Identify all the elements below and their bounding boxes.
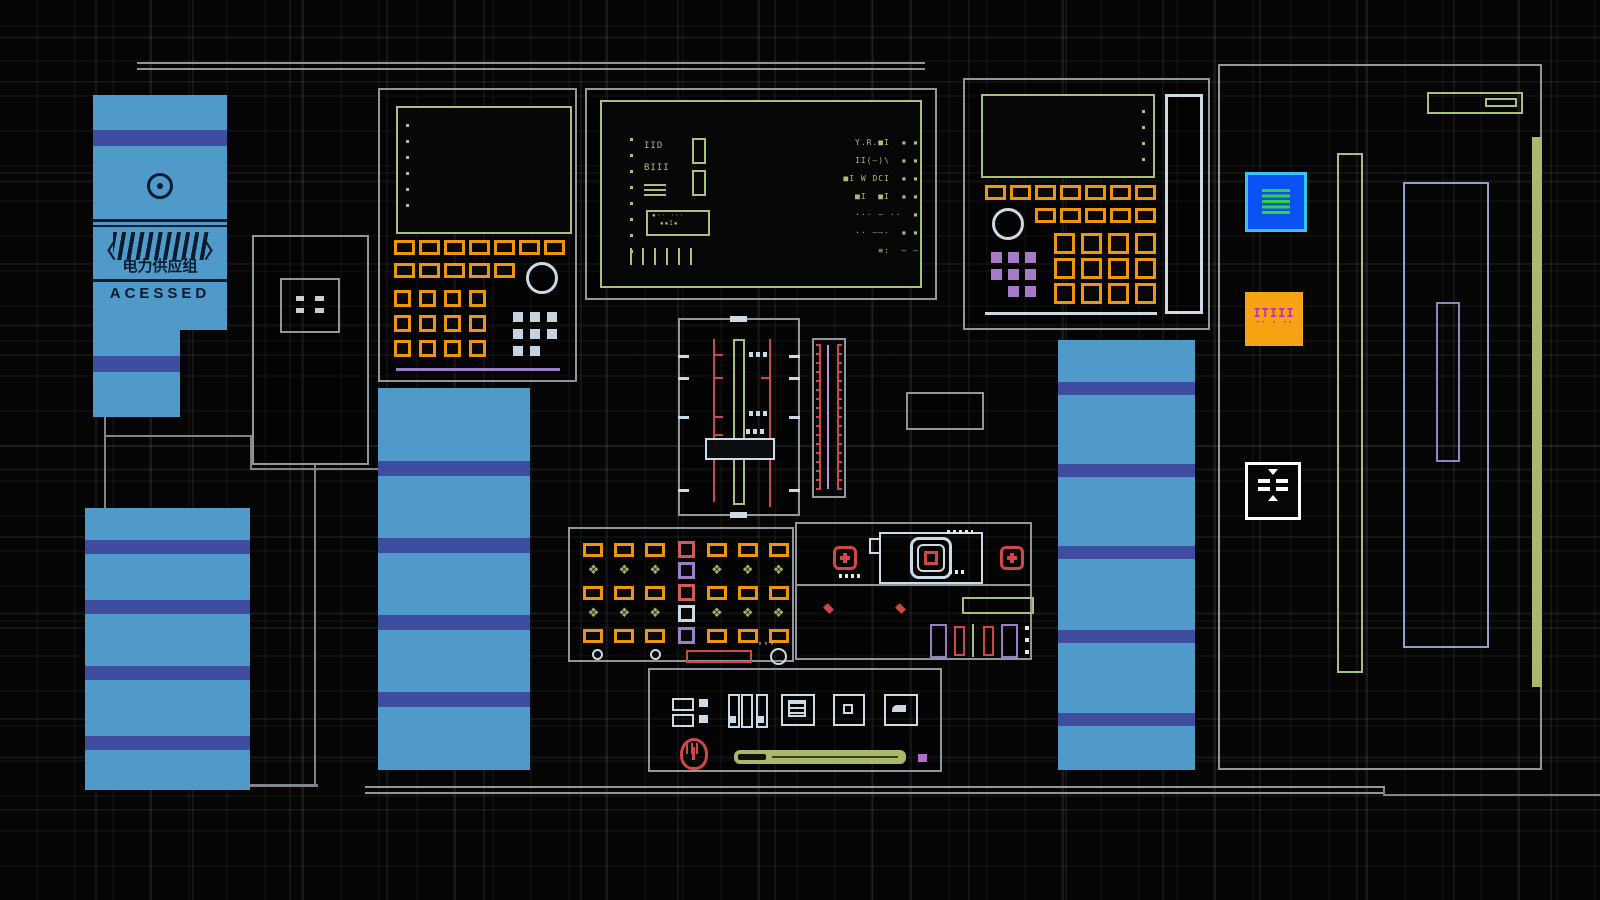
pad-key[interactable] bbox=[1135, 258, 1156, 279]
function-key[interactable] bbox=[419, 240, 440, 255]
matrix-key[interactable] bbox=[707, 629, 727, 643]
menu-icon bbox=[1262, 189, 1290, 215]
bracket-bar bbox=[1258, 479, 1288, 483]
gauge-center-line bbox=[827, 345, 829, 489]
screen-text: Y.R.■I ▪ ▪ bbox=[807, 134, 919, 152]
right-console-screen bbox=[981, 94, 1155, 178]
pad-key[interactable] bbox=[444, 315, 461, 332]
pad-key[interactable] bbox=[419, 340, 436, 357]
right-console bbox=[963, 78, 1210, 330]
fader-handle[interactable] bbox=[705, 438, 775, 460]
function-key-row bbox=[394, 263, 515, 278]
matrix-key[interactable] bbox=[583, 629, 603, 643]
matrix-key-white[interactable] bbox=[678, 605, 695, 622]
pad-key[interactable] bbox=[1135, 283, 1156, 304]
mini-key[interactable] bbox=[547, 312, 557, 322]
deco-dots bbox=[839, 574, 861, 578]
target-icon bbox=[147, 173, 173, 199]
screen-dot-column bbox=[406, 124, 409, 220]
mini-key[interactable] bbox=[1025, 286, 1036, 297]
screen-dot-column bbox=[630, 138, 633, 258]
power-trace-v bbox=[104, 415, 106, 508]
function-key[interactable] bbox=[1035, 185, 1056, 200]
charge-bar bbox=[734, 750, 906, 764]
function-key[interactable] bbox=[394, 263, 415, 278]
diamond-icon: ❖ bbox=[732, 560, 763, 581]
deco-dots bbox=[947, 530, 973, 534]
matrix-key[interactable] bbox=[614, 543, 634, 557]
screen-text: IID bbox=[644, 140, 663, 153]
pad-key[interactable] bbox=[469, 290, 486, 307]
mini-key[interactable] bbox=[530, 312, 540, 322]
layout-mode-button[interactable] bbox=[672, 696, 710, 728]
panel-tab bbox=[730, 512, 747, 518]
mini-key[interactable] bbox=[513, 312, 523, 322]
function-key[interactable] bbox=[1035, 208, 1056, 223]
bottom-trace-stub bbox=[1383, 788, 1385, 796]
function-key[interactable] bbox=[394, 240, 415, 255]
mini-keypad bbox=[513, 312, 557, 356]
screen-text: ·· ––· ▪ ▪ bbox=[807, 224, 919, 242]
bracket-bar bbox=[1258, 487, 1288, 491]
function-key[interactable] bbox=[1060, 208, 1081, 223]
mini-key[interactable] bbox=[991, 269, 1002, 280]
red-indicator bbox=[895, 603, 906, 614]
function-key[interactable] bbox=[519, 240, 540, 255]
left-console bbox=[378, 88, 577, 382]
pad-key[interactable] bbox=[444, 340, 461, 357]
diamond-icon: ❖ bbox=[763, 560, 794, 581]
fader-panel bbox=[678, 318, 800, 516]
matrix-key[interactable] bbox=[645, 543, 665, 557]
matrix-key[interactable] bbox=[738, 629, 758, 643]
matrix-key-purple[interactable] bbox=[678, 562, 695, 579]
charge-bar-cap bbox=[736, 752, 768, 762]
red-indicator bbox=[823, 603, 834, 614]
pad-key[interactable] bbox=[1108, 258, 1129, 279]
divider-line bbox=[93, 219, 227, 222]
mini-key[interactable] bbox=[1008, 252, 1019, 263]
level-bar-purple[interactable] bbox=[1001, 624, 1018, 658]
function-key-row bbox=[394, 240, 565, 255]
target-mode-button[interactable] bbox=[833, 694, 867, 726]
relay-frame bbox=[252, 235, 369, 465]
matrix-key[interactable] bbox=[769, 586, 789, 600]
tower-stripe bbox=[93, 356, 180, 372]
power-tower-center bbox=[378, 388, 530, 770]
diamond-icon: ❖ bbox=[609, 603, 640, 624]
meter-chip bbox=[1427, 92, 1523, 114]
screen-text: BIII bbox=[644, 162, 670, 175]
function-key[interactable] bbox=[1085, 185, 1106, 200]
screen-dot-column bbox=[1142, 110, 1145, 162]
main-display: IID BIII ▪·· ··· ▪▪I▪ Y.R.■I ▪ ▪ II(–)\ … bbox=[600, 100, 922, 288]
rotary-knob[interactable] bbox=[992, 208, 1024, 240]
deco-dots bbox=[949, 570, 967, 574]
sage-rail bbox=[1532, 137, 1542, 687]
function-key[interactable] bbox=[1110, 208, 1131, 223]
matrix-key-red[interactable] bbox=[678, 541, 695, 558]
diamond-icon: ❖ bbox=[763, 603, 794, 624]
purple-chip bbox=[918, 754, 927, 762]
mini-key[interactable] bbox=[1008, 269, 1019, 280]
pad-key[interactable] bbox=[419, 315, 436, 332]
diamond-icon: ❖ bbox=[701, 560, 732, 581]
function-key[interactable] bbox=[494, 240, 515, 255]
function-key[interactable] bbox=[494, 263, 515, 278]
steel-underline bbox=[985, 312, 1157, 315]
pad-key[interactable] bbox=[444, 290, 461, 307]
power-unit-status: ACESSED bbox=[93, 285, 227, 302]
diamond-icon: ❖ bbox=[640, 560, 671, 581]
arrow-up-icon bbox=[1268, 495, 1278, 501]
pad-key[interactable] bbox=[469, 315, 486, 332]
function-key[interactable] bbox=[419, 263, 440, 278]
swap-button[interactable] bbox=[280, 278, 340, 333]
fader-track bbox=[733, 339, 745, 505]
top-trace-line bbox=[137, 62, 925, 70]
gauge-rail bbox=[819, 344, 821, 490]
mini-key[interactable] bbox=[513, 329, 523, 339]
mini-key[interactable] bbox=[513, 346, 523, 356]
pad-key[interactable] bbox=[1081, 233, 1102, 254]
meter-text: ▪·· ··· bbox=[648, 212, 708, 220]
rotary-knob[interactable] bbox=[526, 262, 558, 294]
pad-key[interactable] bbox=[419, 290, 436, 307]
function-key[interactable] bbox=[444, 263, 465, 278]
swap-icon bbox=[296, 308, 324, 313]
diamond-icon: ❖ bbox=[609, 560, 640, 581]
screen-text: II(–)\ ▪ ▪ bbox=[807, 152, 919, 170]
ladder-gauge bbox=[812, 338, 846, 498]
save-mode-button[interactable] bbox=[884, 694, 918, 726]
indicator-lamp bbox=[650, 649, 661, 660]
meter-box: ▪·· ··· ▪▪I▪ bbox=[646, 210, 710, 236]
matrix-key[interactable] bbox=[769, 543, 789, 557]
tower-stripe bbox=[93, 130, 227, 146]
lavender-underline bbox=[396, 368, 560, 371]
housing-flag bbox=[869, 538, 881, 554]
level-line-green bbox=[972, 624, 974, 657]
diamond-icon: ❖ bbox=[640, 603, 671, 624]
matrix-key[interactable] bbox=[583, 586, 603, 600]
pad-key[interactable] bbox=[1108, 283, 1129, 304]
mini-key[interactable] bbox=[530, 329, 540, 339]
expand-button[interactable] bbox=[1245, 462, 1301, 520]
matrix-key[interactable] bbox=[738, 586, 758, 600]
right-rack: ITIII ·· · ·· bbox=[1218, 64, 1542, 770]
power-tower-left bbox=[85, 508, 250, 790]
power-trace-h2 bbox=[250, 468, 378, 470]
keypad-grid bbox=[394, 290, 486, 357]
bar-glyphs bbox=[630, 248, 702, 265]
matrix-key[interactable] bbox=[645, 629, 665, 643]
mini-key[interactable] bbox=[530, 346, 540, 356]
pad-key[interactable] bbox=[394, 340, 411, 357]
panel-divider bbox=[797, 584, 1030, 586]
item-button[interactable]: ITIII ·· · ·· bbox=[1245, 292, 1303, 346]
swap-icon bbox=[296, 296, 324, 301]
screen-slot bbox=[692, 138, 706, 164]
screen-text: ■I W DCI ▪ ▪ bbox=[807, 170, 919, 188]
matrix-key[interactable] bbox=[738, 543, 758, 557]
diamond-icon: ❖ bbox=[578, 560, 609, 581]
screen-slot bbox=[692, 170, 706, 196]
power-unit-column bbox=[93, 330, 180, 417]
level-bar-red[interactable] bbox=[983, 626, 994, 656]
main-dial[interactable] bbox=[910, 537, 952, 579]
fader-ruler-right bbox=[769, 339, 771, 507]
dial-lamp[interactable] bbox=[770, 648, 787, 665]
function-key-row bbox=[985, 185, 1156, 200]
pad-key[interactable] bbox=[394, 315, 411, 332]
function-key[interactable] bbox=[1010, 185, 1031, 200]
matrix-key[interactable] bbox=[707, 586, 727, 600]
matrix-key[interactable] bbox=[614, 629, 634, 643]
function-key[interactable] bbox=[1135, 208, 1156, 223]
indicator-lamp bbox=[592, 649, 603, 660]
red-button[interactable] bbox=[1000, 546, 1024, 570]
screen-lines-glyph bbox=[644, 184, 666, 197]
alert-readout bbox=[686, 650, 752, 663]
dial-housing bbox=[879, 532, 983, 584]
function-key[interactable] bbox=[1135, 185, 1156, 200]
pad-key[interactable] bbox=[1135, 233, 1156, 254]
purple-slot bbox=[1436, 302, 1460, 462]
mini-key[interactable] bbox=[991, 252, 1002, 263]
mini-key[interactable] bbox=[547, 329, 557, 339]
function-key[interactable] bbox=[1085, 208, 1106, 223]
function-key[interactable] bbox=[469, 263, 490, 278]
level-bar-purple[interactable] bbox=[930, 624, 947, 658]
bottom-trace-ext bbox=[1383, 794, 1600, 796]
left-console-screen bbox=[396, 106, 572, 234]
menu-button[interactable] bbox=[1245, 172, 1307, 232]
columns-mode-button[interactable] bbox=[728, 694, 774, 730]
pad-key[interactable] bbox=[1081, 258, 1102, 279]
matrix-key[interactable] bbox=[614, 586, 634, 600]
function-key[interactable] bbox=[544, 240, 565, 255]
mode-strip bbox=[648, 668, 942, 772]
function-key[interactable] bbox=[444, 240, 465, 255]
divider-line bbox=[93, 225, 227, 227]
panel-tab bbox=[730, 316, 747, 322]
arrow-down-icon bbox=[1268, 469, 1278, 475]
main-display-frame: IID BIII ▪·· ··· ▪▪I▪ Y.R.■I ▪ ▪ II(–)\ … bbox=[585, 88, 937, 300]
diamond-icon: ❖ bbox=[732, 603, 763, 624]
matrix-key[interactable] bbox=[583, 543, 603, 557]
power-unit-label-cn: 电力供应组 bbox=[93, 255, 227, 276]
diamond-icon: ❖ bbox=[578, 603, 609, 624]
pad-key[interactable] bbox=[1081, 283, 1102, 304]
green-conduit bbox=[1337, 153, 1363, 673]
power-tower-right bbox=[1058, 340, 1195, 770]
charge-bar-line bbox=[772, 756, 898, 758]
matrix-key[interactable] bbox=[645, 586, 665, 600]
divider-line bbox=[93, 279, 227, 282]
pad-key[interactable] bbox=[394, 290, 411, 307]
periwinkle-frame bbox=[1403, 182, 1489, 648]
function-key[interactable] bbox=[469, 240, 490, 255]
pad-key[interactable] bbox=[469, 340, 486, 357]
matrix-panel: ❖❖❖❖❖❖ ❖❖❖❖❖❖ ''' bbox=[568, 527, 794, 662]
control-board: 〈 〉 电力供应组 ACESSED bbox=[0, 0, 1600, 900]
red-button[interactable] bbox=[833, 546, 857, 570]
function-key-row bbox=[1035, 208, 1156, 223]
item-button-dots: ·· · ·· bbox=[1245, 320, 1303, 326]
function-key[interactable] bbox=[985, 185, 1006, 200]
screen-text: ≡: – – bbox=[807, 242, 919, 260]
pad-key[interactable] bbox=[1054, 233, 1075, 254]
document-mode-button[interactable] bbox=[781, 694, 815, 726]
fader-ruler-left bbox=[713, 339, 715, 502]
matrix-key-purple[interactable] bbox=[678, 627, 695, 644]
gauge-panel bbox=[795, 522, 1032, 660]
pad-key[interactable] bbox=[1054, 283, 1075, 304]
pad-key[interactable] bbox=[1054, 258, 1075, 279]
matrix-key-red[interactable] bbox=[678, 584, 695, 601]
pad-key[interactable] bbox=[1108, 233, 1129, 254]
mini-keypad-purple bbox=[991, 252, 1036, 297]
mini-key[interactable] bbox=[1025, 269, 1036, 280]
mini-key[interactable] bbox=[1008, 286, 1019, 297]
function-key[interactable] bbox=[1060, 185, 1081, 200]
power-button[interactable] bbox=[680, 738, 708, 770]
mini-key[interactable] bbox=[1025, 252, 1036, 263]
status-window bbox=[962, 597, 1034, 614]
vertical-trace bbox=[314, 463, 316, 786]
spare-slot bbox=[906, 392, 984, 430]
deco-dots bbox=[1025, 626, 1029, 656]
meter-text: ▪▪I▪ bbox=[648, 220, 708, 228]
screen-text: ··· – ·· ▪ bbox=[807, 206, 919, 224]
matrix-key[interactable] bbox=[707, 543, 727, 557]
keypad-grid bbox=[1054, 233, 1156, 304]
screen-text: ■I ■I ▪ ▪ bbox=[807, 188, 919, 206]
screen-readout: Y.R.■I ▪ ▪ II(–)\ ▪ ▪ ■I W DCI ▪ ▪ ■I ■I… bbox=[807, 134, 919, 260]
level-bar-red[interactable] bbox=[954, 626, 965, 656]
function-key[interactable] bbox=[1110, 185, 1131, 200]
diamond-icon: ❖ bbox=[701, 603, 732, 624]
bottom-trace-line bbox=[365, 786, 1385, 794]
power-unit-panel: 〈 〉 电力供应组 ACESSED bbox=[93, 95, 227, 330]
power-trace-h bbox=[104, 435, 254, 437]
card-slot bbox=[1165, 94, 1203, 314]
